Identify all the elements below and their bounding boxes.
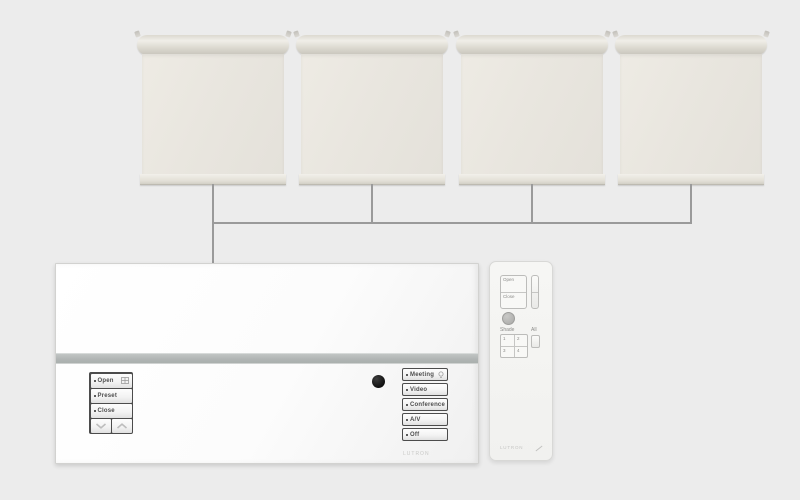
conference-button[interactable]: Conference xyxy=(402,398,448,411)
wire-to-panel xyxy=(212,223,214,264)
off-button[interactable]: Off xyxy=(402,428,448,441)
button-label: Meeting xyxy=(410,372,434,378)
button-label: A/V xyxy=(410,417,421,423)
roller-shade xyxy=(296,35,448,185)
zone-2-button[interactable]: 2 xyxy=(514,335,527,346)
remote-all-section-label: All xyxy=(531,328,537,333)
close-button[interactable]: Close xyxy=(91,404,132,418)
meeting-button[interactable]: Meeting xyxy=(402,368,448,381)
roller-shade xyxy=(137,35,289,185)
led-indicator xyxy=(406,404,408,406)
chevron-down-icon xyxy=(95,423,107,429)
window-grid-icon xyxy=(121,377,129,384)
keypad-brand-logo: LUTRON xyxy=(403,451,430,457)
led-indicator xyxy=(94,410,96,412)
button-label: Open xyxy=(503,278,514,283)
button-label: Open xyxy=(98,378,114,384)
button-label: 4 xyxy=(517,349,520,354)
video-button[interactable]: Video xyxy=(402,383,448,396)
mount-bracket-icon xyxy=(453,30,460,37)
button-label: Close xyxy=(98,408,115,414)
zone-3-button[interactable]: 3 xyxy=(501,346,514,357)
lightbulb-icon xyxy=(438,371,444,379)
mount-bracket-icon xyxy=(134,30,141,37)
wire-shade-1 xyxy=(212,184,214,223)
button-label: 1 xyxy=(503,337,506,342)
roller-tube xyxy=(137,35,289,55)
av-button[interactable]: A/V xyxy=(402,413,448,426)
button-label: Off xyxy=(410,432,419,438)
mount-bracket-icon xyxy=(293,30,300,37)
raise-button[interactable] xyxy=(112,419,132,433)
remote-zone-button-grid: 1 2 3 4 xyxy=(500,334,528,358)
shade-control-panel: Open Preset Close xyxy=(55,263,479,464)
remote-stop-button[interactable] xyxy=(502,312,515,325)
zone-1-button[interactable]: 1 xyxy=(501,335,514,346)
shade-fabric xyxy=(142,54,284,176)
remote-all-button[interactable] xyxy=(531,335,540,348)
button-label: Close xyxy=(503,295,515,300)
preset-button[interactable]: Preset xyxy=(91,389,132,403)
zone-4-button[interactable]: 4 xyxy=(514,346,527,357)
wire-shade-2 xyxy=(371,184,373,223)
mount-bracket-icon xyxy=(285,30,292,37)
wire-shade-3 xyxy=(531,184,533,223)
antenna-mark-icon xyxy=(536,446,543,452)
remote-shade-section-label: Shade xyxy=(500,328,514,333)
wire-shade-4 xyxy=(690,184,692,223)
shade-fabric xyxy=(301,54,443,176)
ir-receiver-dot xyxy=(372,375,385,388)
led-indicator xyxy=(406,374,408,376)
remote-close-button[interactable]: Close xyxy=(501,292,526,309)
handheld-remote: Open Close Shade All 1 2 3 4 xyxy=(489,261,553,461)
button-label: 2 xyxy=(517,337,520,342)
open-button[interactable]: Open xyxy=(91,374,132,388)
roller-tube xyxy=(615,35,767,55)
remote-raise-button[interactable] xyxy=(532,276,538,292)
led-indicator xyxy=(94,380,96,382)
shade-system-diagram: Open Preset Close xyxy=(0,0,800,500)
mount-bracket-icon xyxy=(763,30,770,37)
remote-brand-logo: LUTRON xyxy=(500,445,523,450)
led-indicator xyxy=(94,395,96,397)
led-indicator xyxy=(406,419,408,421)
keypad-right-button-group: Meeting Video Conference A/V Off xyxy=(402,368,448,441)
led-indicator xyxy=(406,434,408,436)
mount-bracket-icon xyxy=(604,30,611,37)
roller-shade xyxy=(615,35,767,185)
wire-bus xyxy=(212,222,692,224)
lower-button[interactable] xyxy=(91,419,111,433)
chevron-up-icon xyxy=(116,423,128,429)
keypad-left-button-group: Open Preset Close xyxy=(89,372,133,434)
remote-raise-lower-rocker xyxy=(531,275,539,309)
remote-open-button[interactable]: Open xyxy=(501,276,526,292)
mount-bracket-icon xyxy=(612,30,619,37)
roller-tube xyxy=(296,35,448,55)
button-label: Video xyxy=(410,387,427,393)
shade-fabric xyxy=(620,54,762,176)
button-label: 3 xyxy=(503,349,506,354)
mount-bracket-icon xyxy=(444,30,451,37)
remote-lower-button[interactable] xyxy=(532,292,538,309)
button-label: Conference xyxy=(410,402,445,408)
remote-open-close-group: Open Close xyxy=(500,275,527,309)
shade-fabric xyxy=(461,54,603,176)
panel-accent-stripe xyxy=(56,353,478,364)
roller-tube xyxy=(456,35,608,55)
button-label: Preset xyxy=(98,393,118,399)
led-indicator xyxy=(406,389,408,391)
roller-shade xyxy=(456,35,608,185)
